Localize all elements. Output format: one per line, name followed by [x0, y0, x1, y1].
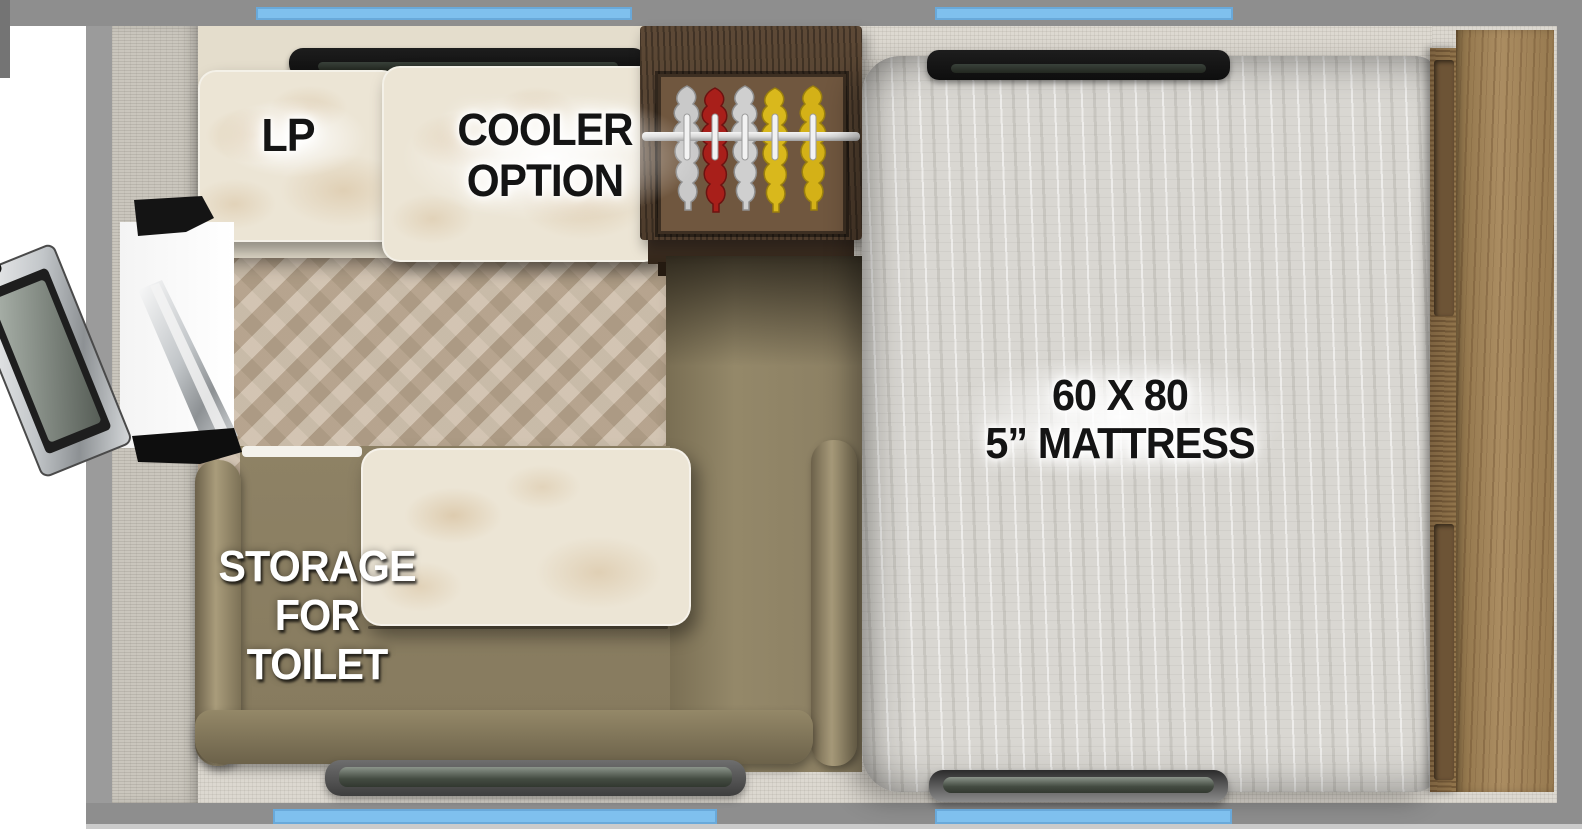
- wall-top-corner-wedge: [0, 0, 10, 78]
- wall-right: [1557, 26, 1582, 803]
- sofa-seat-highlight: [242, 446, 362, 457]
- bottom-right-window: [929, 770, 1228, 802]
- mattress-label-line2: 5” MATTRESS: [941, 420, 1298, 468]
- cooler-label-line1: COOLER: [428, 104, 663, 155]
- exterior-window-marker-bottom-right: [935, 809, 1232, 824]
- bottom-center-window-glass: [339, 767, 732, 787]
- lp-label: LP: [241, 108, 335, 162]
- exterior-window-marker-top-right: [935, 7, 1233, 20]
- mattress-label-line1: 60 X 80: [941, 372, 1298, 420]
- sofa-armrest-right: [811, 440, 857, 766]
- door-panel: [0, 236, 132, 480]
- entry-door-open: [0, 190, 260, 490]
- headboard-lip-recess-top: [1434, 60, 1454, 316]
- wardrobe-cast-shadow: [666, 256, 862, 366]
- exterior-window-marker-bottom-left: [273, 809, 717, 824]
- headboard-cabinet-face: [1456, 30, 1554, 792]
- wall-top: [0, 0, 1582, 26]
- headboard-lip-recess-bottom: [1434, 524, 1454, 780]
- wall-bottom-edge: [86, 824, 1582, 829]
- door-jamb-bottom: [132, 428, 242, 464]
- storage-label-line3: TOILET: [200, 640, 435, 689]
- storage-label-line2: FOR: [200, 591, 435, 640]
- exterior-window-marker-top-left: [256, 7, 632, 20]
- storage-label-line1: STORAGE: [200, 542, 435, 591]
- mattress-label: 60 X 80 5” MATTRESS: [941, 372, 1298, 468]
- storage-toilet-label: STORAGE FOR TOILET: [200, 542, 435, 689]
- door-jamb-top: [134, 196, 214, 236]
- cooler-label: COOLER OPTION: [428, 104, 663, 206]
- bottom-right-window-glass: [943, 777, 1214, 793]
- floorplan-canvas: LP COOLER OPTION 60 X 80 5” MATTRESS STO…: [0, 0, 1582, 829]
- cooler-label-line2: OPTION: [428, 155, 663, 206]
- top-right-window-glass: [951, 64, 1206, 73]
- top-right-window: [927, 50, 1230, 80]
- bottom-center-window: [325, 760, 746, 796]
- sofa-front-rail: [195, 710, 813, 764]
